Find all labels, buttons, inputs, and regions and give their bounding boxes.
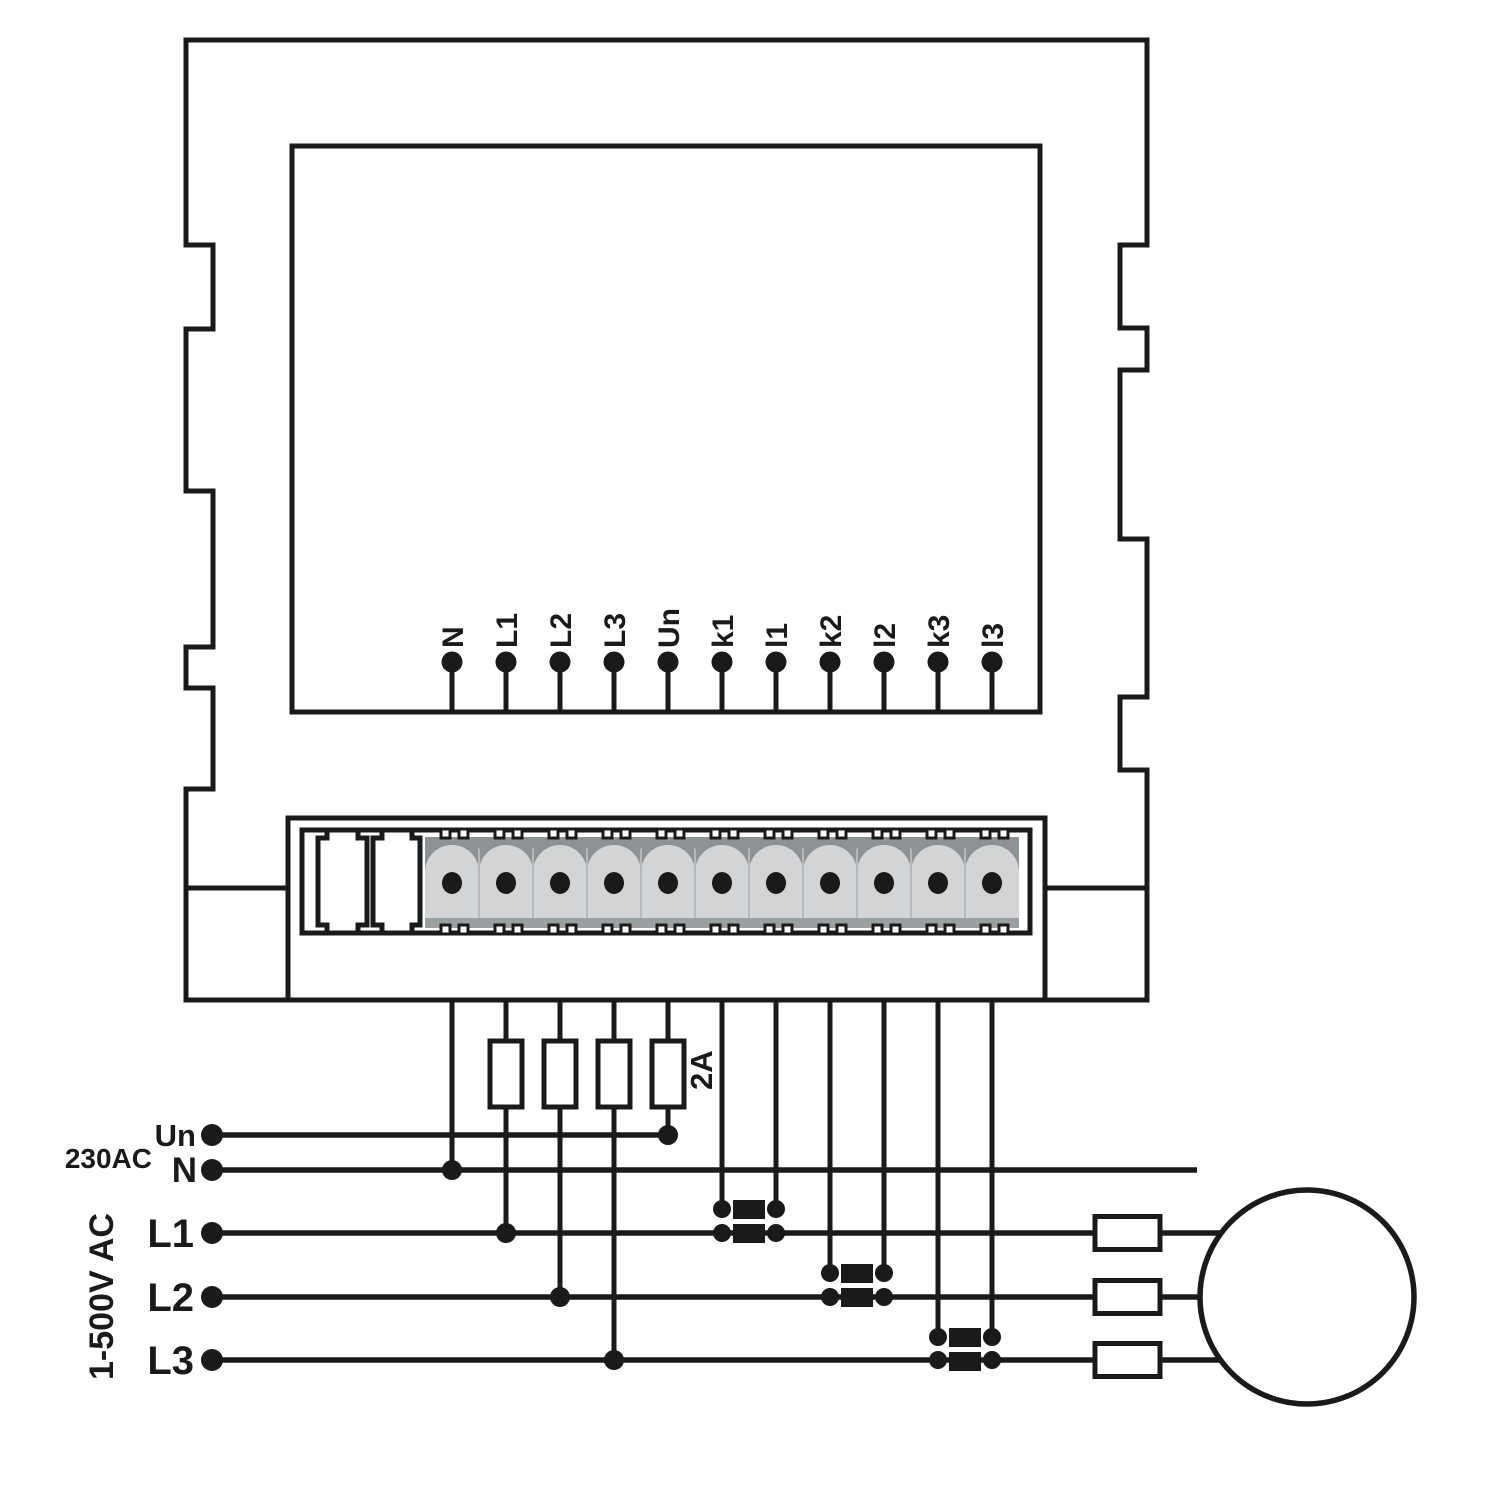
terminal-label-L3: L3 [599,613,632,648]
ct-dot [983,1328,1001,1346]
strip-tooth [729,925,738,934]
strip-tooth [459,925,468,934]
ct-dot [929,1328,947,1346]
neutral-label: N [172,1151,197,1190]
supply-terminal-dot-L2 [201,1286,223,1308]
ct-dot [767,1200,785,1218]
strip-tooth [459,829,468,838]
strip-tooth [783,925,792,934]
line-fuse-L2 [1095,1281,1160,1314]
terminal-label-l1: l1 [761,623,794,648]
terminal-label-L1: L1 [491,613,524,648]
strip-tooth [765,925,774,934]
strip-tooth [603,925,612,934]
terminal-label-k1: k1 [707,615,740,648]
strip-tooth [729,829,738,838]
strip-tooth [999,829,1008,838]
terminal-strip [425,829,1019,934]
strip-tooth [927,925,936,934]
screw-terminal-L1 [496,872,516,894]
strip-tooth [981,925,990,934]
terminal-label-l3: l3 [977,623,1010,648]
strip-tooth [549,829,558,838]
junction-dot-N [442,1160,462,1180]
junction-dot-Un [658,1125,678,1145]
junction-dot-L2 [550,1287,570,1307]
ct-secondary-bar [733,1200,765,1219]
strip-tooth [603,829,612,838]
strip-tooth [891,925,900,934]
strip-tooth [837,925,846,934]
wiring-diagram-page: NL1L2L3Unk1l1k2l2k3l3 2A [0,0,1500,1500]
terminal-pin-dot-k3 [928,652,949,673]
ct-dot [713,1200,731,1218]
current-transformer-L1 [713,1200,785,1243]
junction-dot-L3 [604,1350,624,1370]
strip-tooth [549,925,558,934]
terminal-label-Un: Un [653,608,686,648]
fuse-L1 [490,1041,522,1107]
un-label: Un [155,1118,196,1153]
ct-secondary-bar [949,1328,981,1347]
voltage-label: 230AC [65,1143,152,1174]
strip-tooth [441,925,450,934]
screw-terminal-l3 [982,872,1002,894]
screw-terminal-k2 [820,872,840,894]
strip-tooth [945,925,954,934]
supply-terminal-dot-L1 [201,1222,223,1244]
terminal-label-N: N [437,626,470,648]
fuse-L3 [598,1041,630,1107]
strip-tooth [567,925,576,934]
screw-terminal-k3 [928,872,948,894]
range-label: 1-500V AC [83,1213,121,1380]
strip-tooth [495,829,504,838]
strip-tooth [441,829,450,838]
strip-tooth [981,829,990,838]
phase-label-L3: L3 [147,1339,194,1383]
strip-tooth [927,829,936,838]
terminal-pin-dot-Un [658,652,679,673]
ct-dot [875,1288,893,1306]
load-circle [1200,1190,1414,1404]
strip-tooth [819,925,828,934]
line-fuse-L3 [1095,1344,1160,1377]
fuse-L2 [544,1041,576,1107]
terminal-pin-dot-k2 [820,652,841,673]
phase-label-L1: L1 [147,1212,194,1256]
terminal-pin-dot-L2 [550,652,571,673]
strip-tooth [675,925,684,934]
terminal-label-k3: k3 [923,615,956,648]
line-fuse-L1 [1095,1217,1160,1250]
phase-label-L2: L2 [147,1276,194,1320]
terminal-pin-dot-L1 [496,652,517,673]
strip-tooth [621,925,630,934]
terminal-pin-dot-l2 [874,652,895,673]
screw-terminal-N [442,872,462,894]
connector-tab [318,830,367,933]
junction-dot-L1 [496,1223,516,1243]
strip-tooth [999,925,1008,934]
strip-tooth [819,829,828,838]
strip-tooth [567,829,576,838]
strip-tooth [945,829,954,838]
terminal-pin-dot-l1 [766,652,787,673]
strip-tooth [765,829,774,838]
strip-tooth [711,925,720,934]
terminal-pin-dot-l3 [982,652,1003,673]
supply-terminal-dot-Un [201,1124,223,1146]
connector-tab [373,830,420,933]
ct-dot [713,1224,731,1242]
terminal-pin-dot-k1 [712,652,733,673]
strip-tooth [495,925,504,934]
strip-tooth [837,829,846,838]
terminal-wires [452,1000,992,1360]
strip-tooth [711,829,720,838]
strip-tooth [513,925,522,934]
supply-terminal-dot-N [201,1159,223,1181]
supply-terminal-dot-L3 [201,1349,223,1371]
ct-primary-bar [949,1352,981,1371]
screw-terminal-l1 [766,872,786,894]
ct-dot [929,1351,947,1369]
strip-tooth [513,829,522,838]
strip-tooth [621,829,630,838]
current-transformer-L2 [821,1264,893,1307]
ct-primary-bar [733,1224,765,1243]
terminal-label-L2: L2 [545,613,578,648]
screw-terminal-l2 [874,872,894,894]
screw-terminal-Un [658,872,678,894]
ct-dot [983,1351,1001,1369]
ct-primary-bar [841,1288,873,1307]
terminal-pin-dot-L3 [604,652,625,673]
terminal-label-k2: k2 [815,615,848,648]
strip-tooth [675,829,684,838]
ct-dot [875,1264,893,1282]
strip-tooth [873,925,882,934]
strip-tooth [891,829,900,838]
fuse-rating-label: 2A [684,1050,719,1090]
ct-dot [767,1224,785,1242]
current-transformer-L3 [929,1328,1001,1371]
strip-tooth [657,925,666,934]
screw-terminal-k1 [712,872,732,894]
screw-terminal-L2 [550,872,570,894]
ct-secondary-bar [841,1264,873,1283]
strip-tooth [783,829,792,838]
strip-tooth [657,829,666,838]
terminal-label-l2: l2 [869,623,902,648]
ct-dot [821,1288,839,1306]
strip-tooth [873,829,882,838]
fuse-Un [652,1041,684,1107]
terminal-pin-dot-N [442,652,463,673]
wiring-diagram: NL1L2L3Unk1l1k2l2k3l3 2A [0,0,1500,1500]
screw-terminal-L3 [604,872,624,894]
ct-dot [821,1264,839,1282]
